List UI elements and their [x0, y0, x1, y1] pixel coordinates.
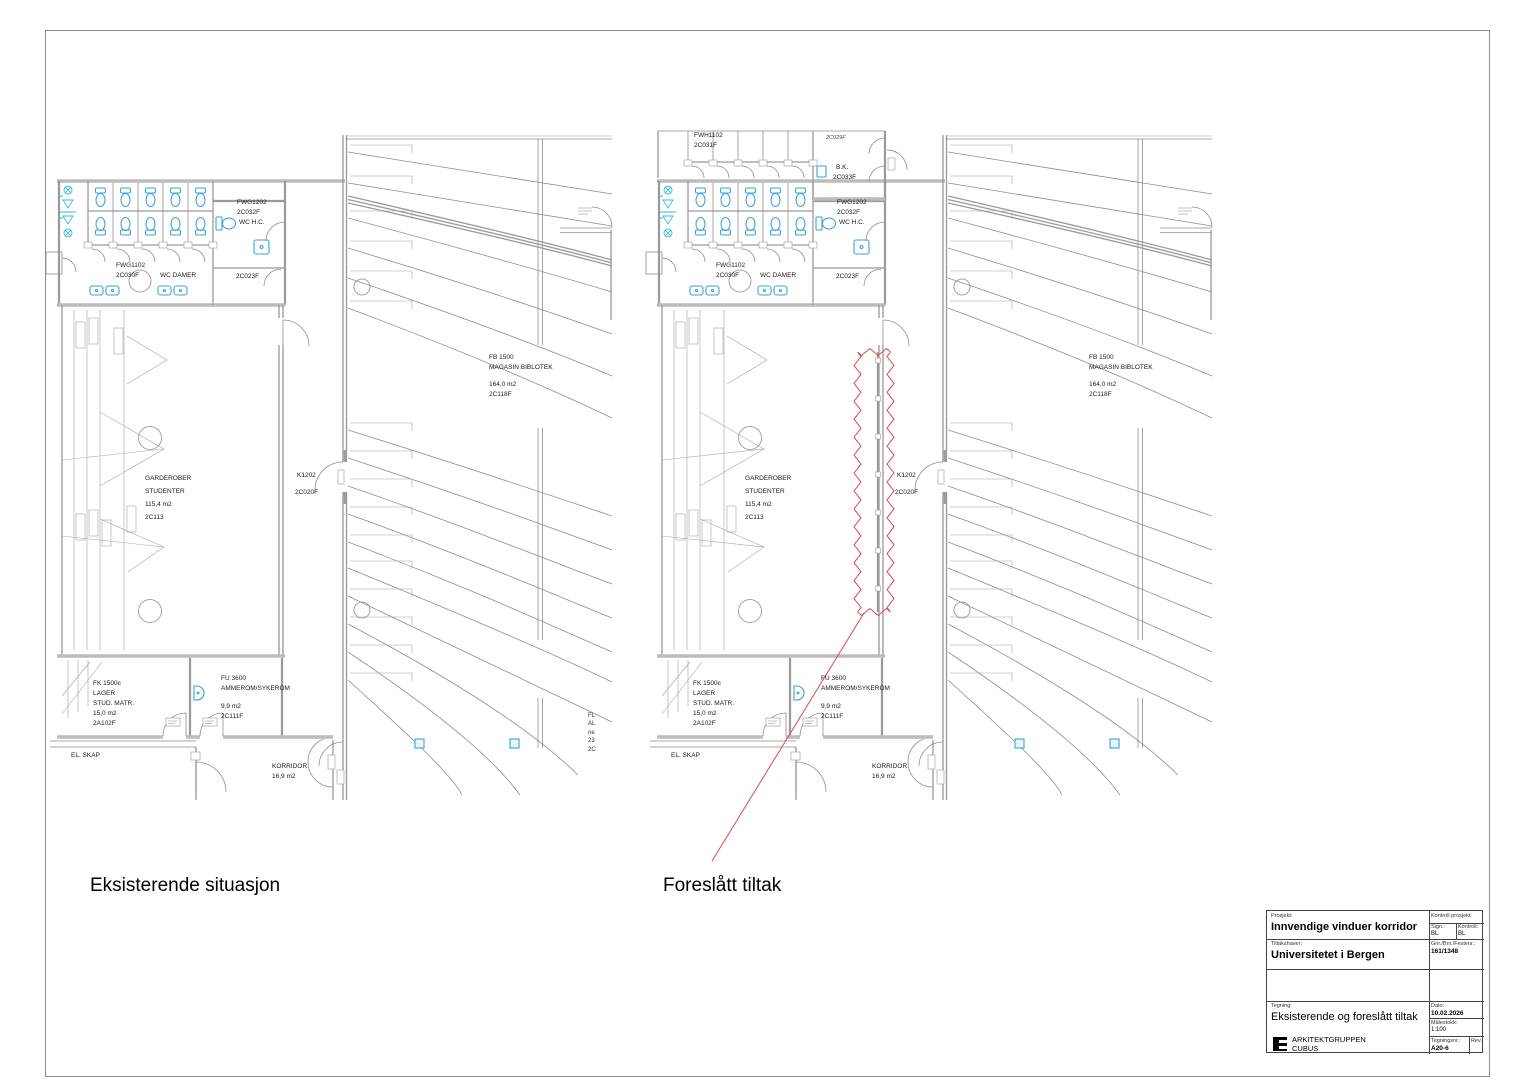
sign-value: BL [1431, 931, 1438, 937]
room-label: FB 1500 [489, 354, 514, 362]
room-area: 164,0 m2 [489, 381, 516, 389]
room-label: B.K. [836, 164, 848, 172]
firm-name: CUBUS [1292, 1044, 1318, 1053]
divider [1429, 911, 1430, 1054]
divider [1267, 969, 1429, 970]
field-label: Rev.: [1471, 1038, 1483, 1044]
divider [1429, 969, 1484, 970]
room-number: 2C023F [836, 273, 859, 281]
room-area: 115,4 m2 [145, 501, 172, 509]
scale-value: 1:100 [1431, 1027, 1446, 1033]
room-label: WC H.C. [839, 219, 865, 227]
room-label: GARDEROBER [145, 475, 191, 483]
room-number: 2C030F [716, 272, 739, 280]
date-value: 10.02.2026 [1431, 1010, 1464, 1017]
room-area: 15,0 m2 [693, 710, 717, 718]
field-label: Prosjekt: [1271, 913, 1292, 919]
field-label: Kontroll: [1458, 924, 1478, 930]
room-area: 9,9 m2 [221, 703, 241, 711]
clipped-room-label: AL [588, 720, 595, 728]
room-label: LAGER [693, 690, 715, 698]
room-area: 9,9 m2 [821, 703, 841, 711]
room-area: 115,4 m2 [745, 501, 772, 509]
room-label: EL. SKAP [71, 752, 100, 760]
caption-existing: Eksisterende situasjon [90, 875, 280, 897]
room-number: 2C111F [221, 713, 243, 721]
divider [1429, 1001, 1484, 1002]
room-label: FK 1500c [93, 680, 121, 688]
room-number: 2C033F [833, 174, 856, 182]
clipped-room-label: ne [588, 729, 595, 737]
room-label: GARDEROBER [745, 475, 791, 483]
room-label: WC H.C. [239, 219, 265, 227]
divider [1469, 1036, 1470, 1054]
room-label: FWG1202 [837, 199, 867, 207]
room-label: FWH1102 [694, 132, 723, 140]
room-area: 16,9 m2 [272, 773, 296, 781]
field-label: Sign.: [1431, 924, 1445, 930]
room-label: STUD. MATR. [93, 700, 134, 708]
room-label: FWG1102 [716, 262, 745, 270]
clipped-room-label: FL [588, 712, 595, 720]
room-number: 2C023F [236, 273, 259, 281]
room-area: 16,9 m2 [872, 773, 896, 781]
firm-logo [1273, 1037, 1287, 1051]
divider [1267, 939, 1429, 940]
room-number: 2C032F [237, 209, 260, 217]
clipped-room-label: 23 [588, 737, 595, 745]
room-number: 2C032F [837, 209, 860, 217]
room-number: 2C031F [694, 142, 717, 150]
room-number: 2A102F [93, 720, 116, 728]
room-number: 2C113 [145, 514, 164, 522]
room-label: MAGASIN BIBLOTEK [489, 364, 553, 372]
room-number: 2C111F [821, 713, 843, 721]
room-label: FB 1500 [1089, 354, 1114, 362]
drawing-sheet: FWG1102 2C030F WC DAMER FWG1202 2C032F W… [0, 0, 1527, 1080]
field-label: Kontroll prosjekt: [1431, 913, 1472, 919]
divider [1429, 939, 1484, 940]
room-label: FK 1500c [693, 680, 721, 688]
room-label: EL. SKAP [671, 752, 700, 760]
room-label: STUDENTER [745, 488, 785, 496]
door-tag: 2C029F [826, 134, 846, 142]
room-label: WC DAMER [760, 272, 796, 280]
room-label: MAGASIN BIBLOTEK [1089, 364, 1153, 372]
drawing-number: A20-6 [1431, 1045, 1449, 1052]
title-block: Prosjekt: Innvendige vinduer korridor Ti… [1266, 910, 1483, 1053]
room-label: FU 3600 [821, 675, 846, 683]
room-number: 2A102F [693, 720, 716, 728]
door-label: K1202 [297, 472, 316, 480]
firm-name: ARKITEKTGRUPPEN [1292, 1035, 1366, 1044]
project-title: Innvendige vinduer korridor [1271, 921, 1417, 933]
clipped-room-label: 2C [588, 746, 596, 754]
field-label: Tegningsnr.: [1431, 1038, 1461, 1044]
room-label: WC DAMER [160, 272, 196, 280]
room-label: FWG1102 [116, 262, 145, 270]
door-number: 2C020F [895, 489, 918, 497]
drawing-title: Eksisterende og foreslått tiltak [1271, 1011, 1418, 1023]
room-label: FU 3600 [221, 675, 246, 683]
room-label: STUDENTER [145, 488, 185, 496]
room-number: 2C118F [1089, 391, 1112, 399]
room-label: AMMEROM/SYKEROM [821, 685, 890, 693]
room-label: KORRIDOR [272, 763, 307, 771]
room-area: 15,0 m2 [93, 710, 117, 718]
door-number: 2C020F [295, 489, 318, 497]
room-label: STUD. MATR. [693, 700, 734, 708]
divider [1429, 1018, 1484, 1019]
room-label: LAGER [93, 690, 115, 698]
room-label: KORRIDOR [872, 763, 907, 771]
door-label: K1202 [897, 472, 916, 480]
field-label: Tegning: [1271, 1003, 1292, 1009]
divider [1267, 1001, 1429, 1002]
field-label: Målestokk: [1431, 1020, 1457, 1026]
field-label: Tiltakshaver: [1271, 941, 1302, 947]
caption-proposed: Foreslått tiltak [663, 875, 781, 897]
client-name: Universitetet i Bergen [1271, 949, 1385, 961]
room-number: 2C113 [745, 514, 764, 522]
divider [1456, 923, 1457, 939]
kontroll-value: BL [1458, 931, 1465, 937]
field-label: Dato: [1431, 1003, 1444, 1009]
field-label: Gnr./Bnr./Festenr.: [1431, 941, 1476, 947]
room-area: 164,0 m2 [1089, 381, 1116, 389]
room-number: 2C030F [116, 272, 139, 280]
room-label: AMMEROM/SYKEROM [221, 685, 290, 693]
divider [1429, 1036, 1484, 1037]
room-number: 2C118F [489, 391, 512, 399]
gnr-value: 161/1348 [1431, 948, 1458, 955]
room-label: FWG1202 [237, 199, 267, 207]
